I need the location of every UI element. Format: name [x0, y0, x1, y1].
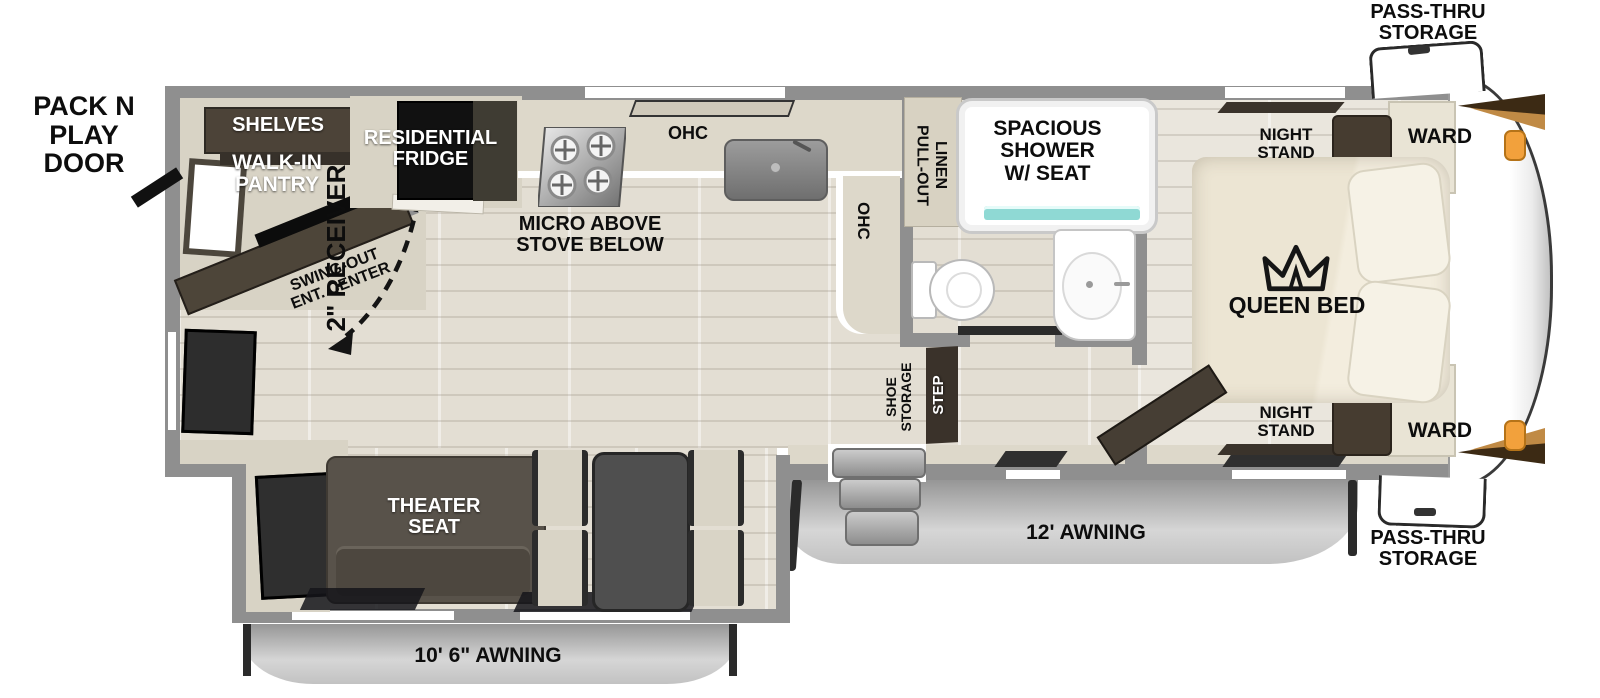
- bottom-window-slit-1: [1006, 470, 1060, 479]
- walk-in-pantry-label: WALK-IN PANTRY: [212, 152, 342, 197]
- micro-above-stove-label: MICRO ABOVE STOVE BELOW: [505, 214, 675, 256]
- bath-door-threshold: [958, 326, 1062, 335]
- pass-thru-latch-bottom: [1414, 508, 1436, 516]
- bedroom-shade-top: [1217, 102, 1344, 113]
- slide-bottom-window-1: [292, 611, 454, 620]
- pass-thru-door-bottom: [1377, 475, 1487, 529]
- rear-wall-tv: [181, 329, 257, 435]
- floorplan-canvas: PACK N PLAY DOOR 2" RECEIVER SHELVES WAL…: [0, 0, 1600, 698]
- slide-left-wall: [232, 455, 246, 623]
- awning-10ft6-left-edge: [243, 624, 251, 676]
- vanity-drain: [1086, 281, 1093, 288]
- dinette-chair-2: [532, 530, 588, 606]
- slide-tv: [255, 472, 335, 600]
- entry-step-2: [839, 478, 921, 510]
- night-stand-bottom-cabinet: [1332, 395, 1392, 456]
- bottom-window-slit-2: [1232, 470, 1346, 479]
- pull-out-linen-label: PULL-OUT LINEN: [912, 104, 949, 226]
- kitchen-window: [585, 87, 785, 98]
- slide-right-wall: [776, 455, 790, 623]
- night-stand-bottom-label: NIGHT STAND: [1245, 404, 1327, 440]
- cap-handle-top: [1504, 130, 1526, 161]
- pass-thru-bottom-label: PASS-THRU STORAGE: [1353, 528, 1503, 570]
- rear-wall-window: [168, 332, 176, 430]
- step-label: STEP: [931, 350, 953, 440]
- range-hood-vent: [629, 100, 795, 117]
- dinette-chair-3: [688, 450, 744, 526]
- bedroom-shade-bottom: [1217, 444, 1344, 455]
- shoe-storage-label: SHOE STORAGE: [884, 332, 918, 462]
- slide-bottom-window-2: [520, 611, 690, 620]
- pass-thru-top-label: PASS-THRU STORAGE: [1353, 2, 1503, 44]
- dinette-table: [592, 452, 690, 612]
- ohc-side-label: OHC: [854, 190, 872, 252]
- night-stand-top-label: NIGHT STAND: [1245, 126, 1327, 162]
- bed-pillow-top: [1345, 161, 1452, 286]
- dinette-chair-1: [532, 450, 588, 526]
- ward-bottom-label: WARD: [1395, 420, 1485, 442]
- entry-step-3: [845, 510, 919, 546]
- toilet-seat: [946, 272, 982, 308]
- theater-seat-label: THEATER SEAT: [374, 496, 494, 538]
- spacious-shower-label: SPACIOUS SHOWER W/ SEAT: [975, 118, 1120, 185]
- crown-icon: [1262, 244, 1330, 292]
- stove-cooktop: [538, 127, 626, 207]
- residential-fridge-label: RESIDENTIAL FRIDGE: [348, 128, 513, 170]
- kitchen-sink-drain: [770, 162, 781, 173]
- awning-10ft6-label: 10' 6" AWNING: [403, 645, 573, 667]
- queen-bed-label: QUEEN BED: [1213, 293, 1381, 317]
- vanity-faucet: [1114, 282, 1130, 286]
- bottom-window-pane-1: [994, 451, 1067, 467]
- floor-mat-theater: [300, 588, 425, 610]
- awning-12ft-label: 12' AWNING: [1006, 522, 1166, 544]
- pack-n-play-door-label: PACK N PLAY DOOR: [0, 92, 168, 178]
- ward-top-label: WARD: [1395, 126, 1485, 148]
- shelves-label: SHELVES: [216, 115, 340, 136]
- bedroom-window: [1225, 87, 1345, 98]
- awning-10ft6-right-edge: [729, 624, 737, 676]
- ohc-top-label: OHC: [660, 124, 716, 143]
- shower-glass-seat: [984, 206, 1140, 220]
- dinette-chair-4: [688, 530, 744, 606]
- cap-handle-bottom: [1504, 420, 1526, 451]
